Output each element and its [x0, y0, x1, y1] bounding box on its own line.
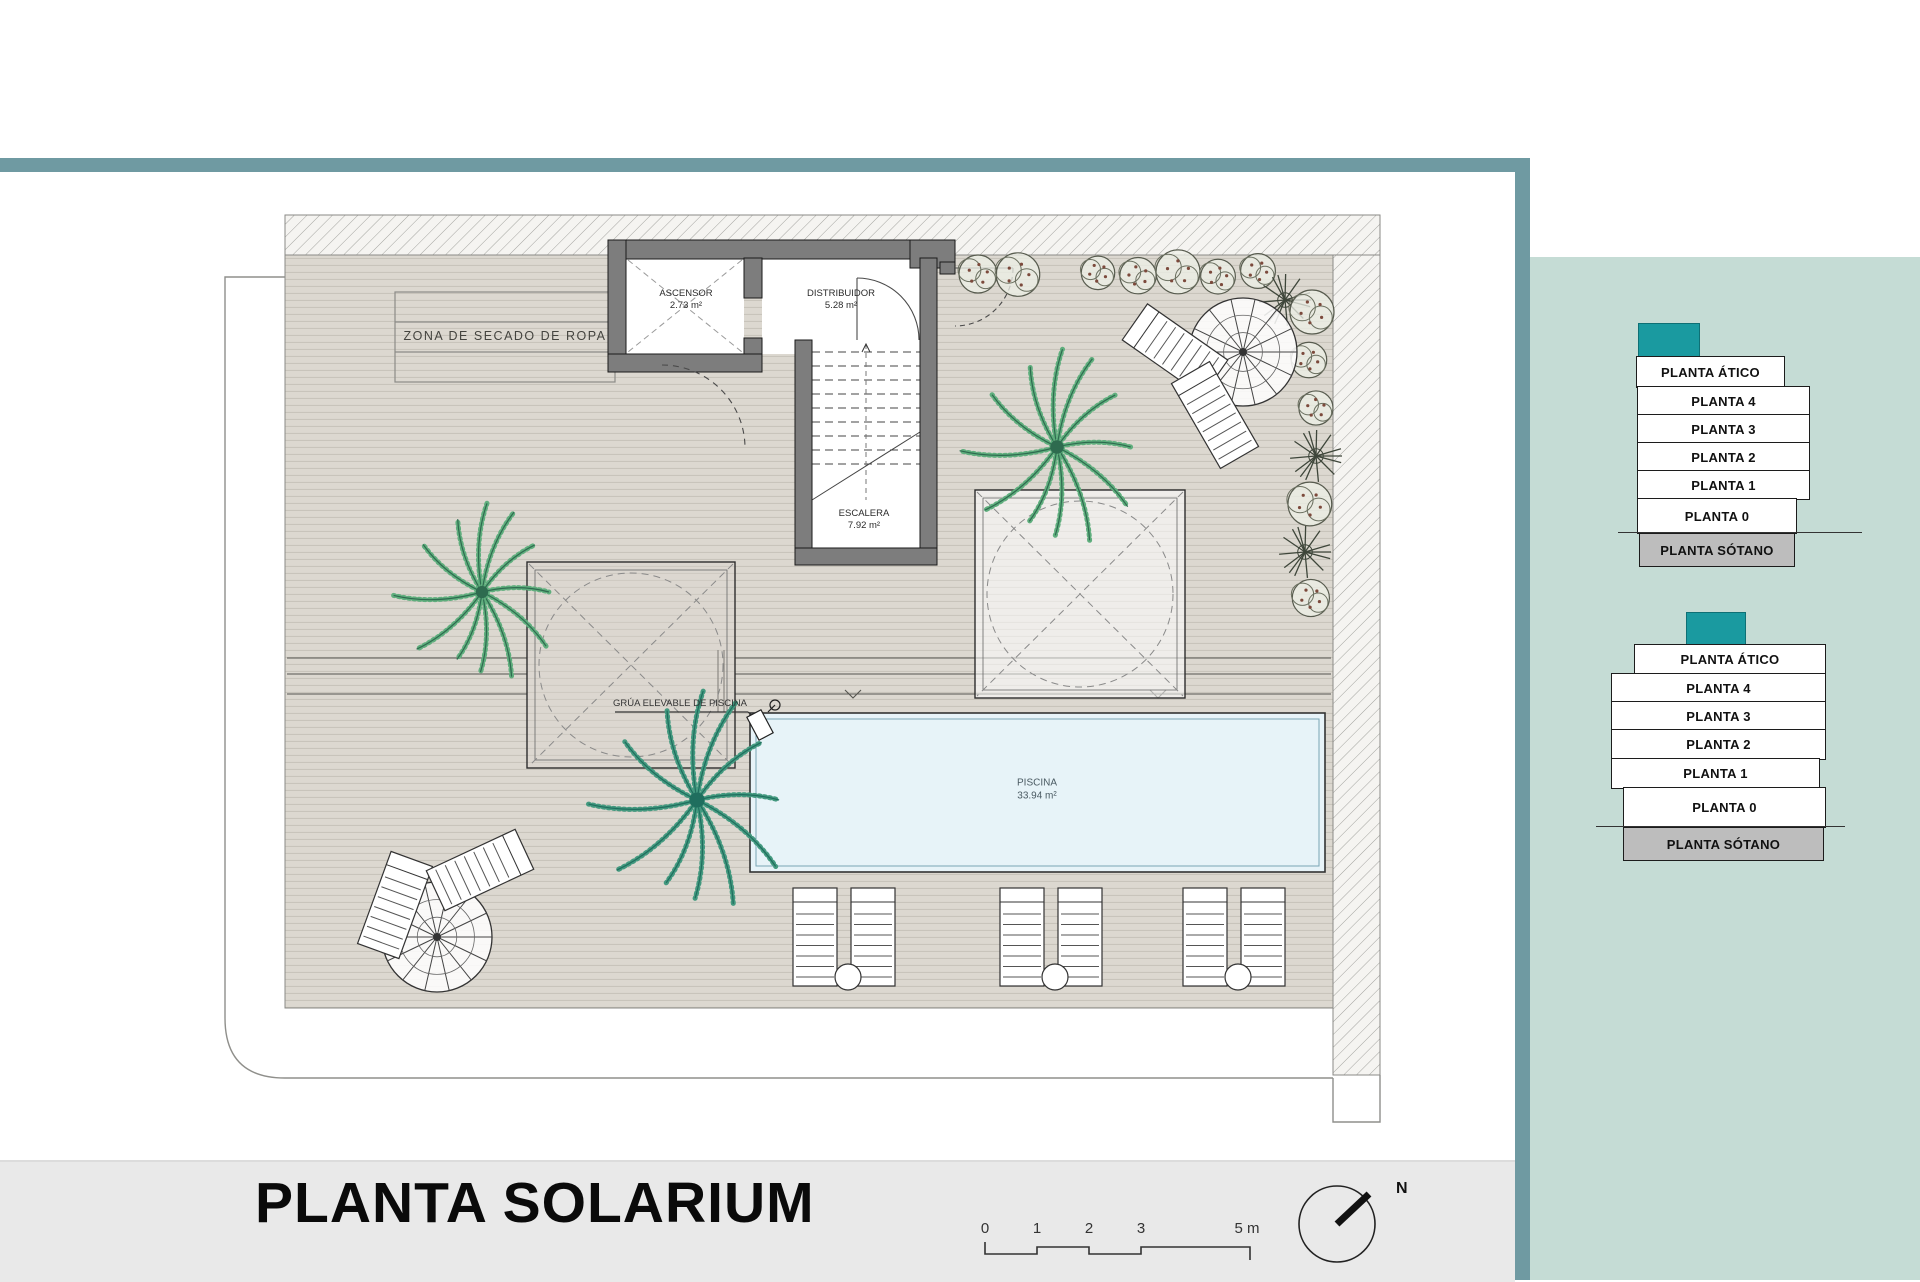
page-title: PLANTA SOLARIUM [255, 1170, 815, 1236]
scale-tick-0: 0 [981, 1220, 989, 1237]
floor-row-atico[interactable]: PLANTA ÁTICO [1634, 644, 1826, 675]
building-diagram-bottom: PLANTA ÁTICO PLANTA 4 PLANTA 3 PLANTA 2 … [1530, 587, 1920, 917]
skylight-right [975, 490, 1185, 698]
plan-sheet: ZONA DE SECADO DE ROPA ASCENSOR 2.73 m² … [0, 172, 1515, 1160]
floor-row-planta4[interactable]: PLANTA 4 [1611, 673, 1826, 703]
swimming-pool [750, 713, 1325, 872]
floor-row-planta2[interactable]: PLANTA 2 [1611, 729, 1826, 760]
current-level-marker [1686, 612, 1746, 646]
top-teal-bar [0, 158, 1530, 172]
floor-plan-drawing [0, 172, 1515, 1160]
floor-row-planta2[interactable]: PLANTA 2 [1637, 442, 1810, 472]
floor-row-planta3[interactable]: PLANTA 3 [1637, 414, 1810, 444]
north-arrow-icon [1299, 1186, 1375, 1262]
floor-row-planta0[interactable]: PLANTA 0 [1623, 787, 1826, 828]
scale-tick-5m: 5 m [1234, 1220, 1259, 1237]
floor-row-planta0[interactable]: PLANTA 0 [1637, 498, 1797, 534]
sheet-right-border [1515, 158, 1530, 1280]
floor-row-sotano[interactable]: PLANTA SÓTANO [1639, 533, 1795, 567]
floor-row-planta1[interactable]: PLANTA 1 [1637, 470, 1810, 500]
sidebar: PLANTA ÁTICO PLANTA 4 PLANTA 3 PLANTA 2 … [1530, 257, 1920, 1280]
scale-bar [985, 1242, 1250, 1260]
scale-tick-2: 2 [1085, 1220, 1093, 1237]
building-diagram-top: PLANTA ÁTICO PLANTA 4 PLANTA 3 PLANTA 2 … [1530, 257, 1920, 587]
scale-tick-1: 1 [1033, 1220, 1041, 1237]
floor-row-planta1[interactable]: PLANTA 1 [1611, 758, 1820, 789]
footer: PLANTA SOLARIUM 0 1 2 3 5 m N [0, 1160, 1515, 1282]
north-label: N [1396, 1180, 1408, 1198]
floor-row-sotano[interactable]: PLANTA SÓTANO [1623, 827, 1824, 861]
current-level-marker [1638, 323, 1700, 358]
floor-row-atico[interactable]: PLANTA ÁTICO [1636, 356, 1785, 388]
skylight-left [527, 562, 735, 768]
footer-graphics [940, 1162, 1410, 1282]
floor-row-planta4[interactable]: PLANTA 4 [1637, 386, 1810, 416]
floor-row-planta3[interactable]: PLANTA 3 [1611, 701, 1826, 731]
scale-tick-3: 3 [1137, 1220, 1145, 1237]
